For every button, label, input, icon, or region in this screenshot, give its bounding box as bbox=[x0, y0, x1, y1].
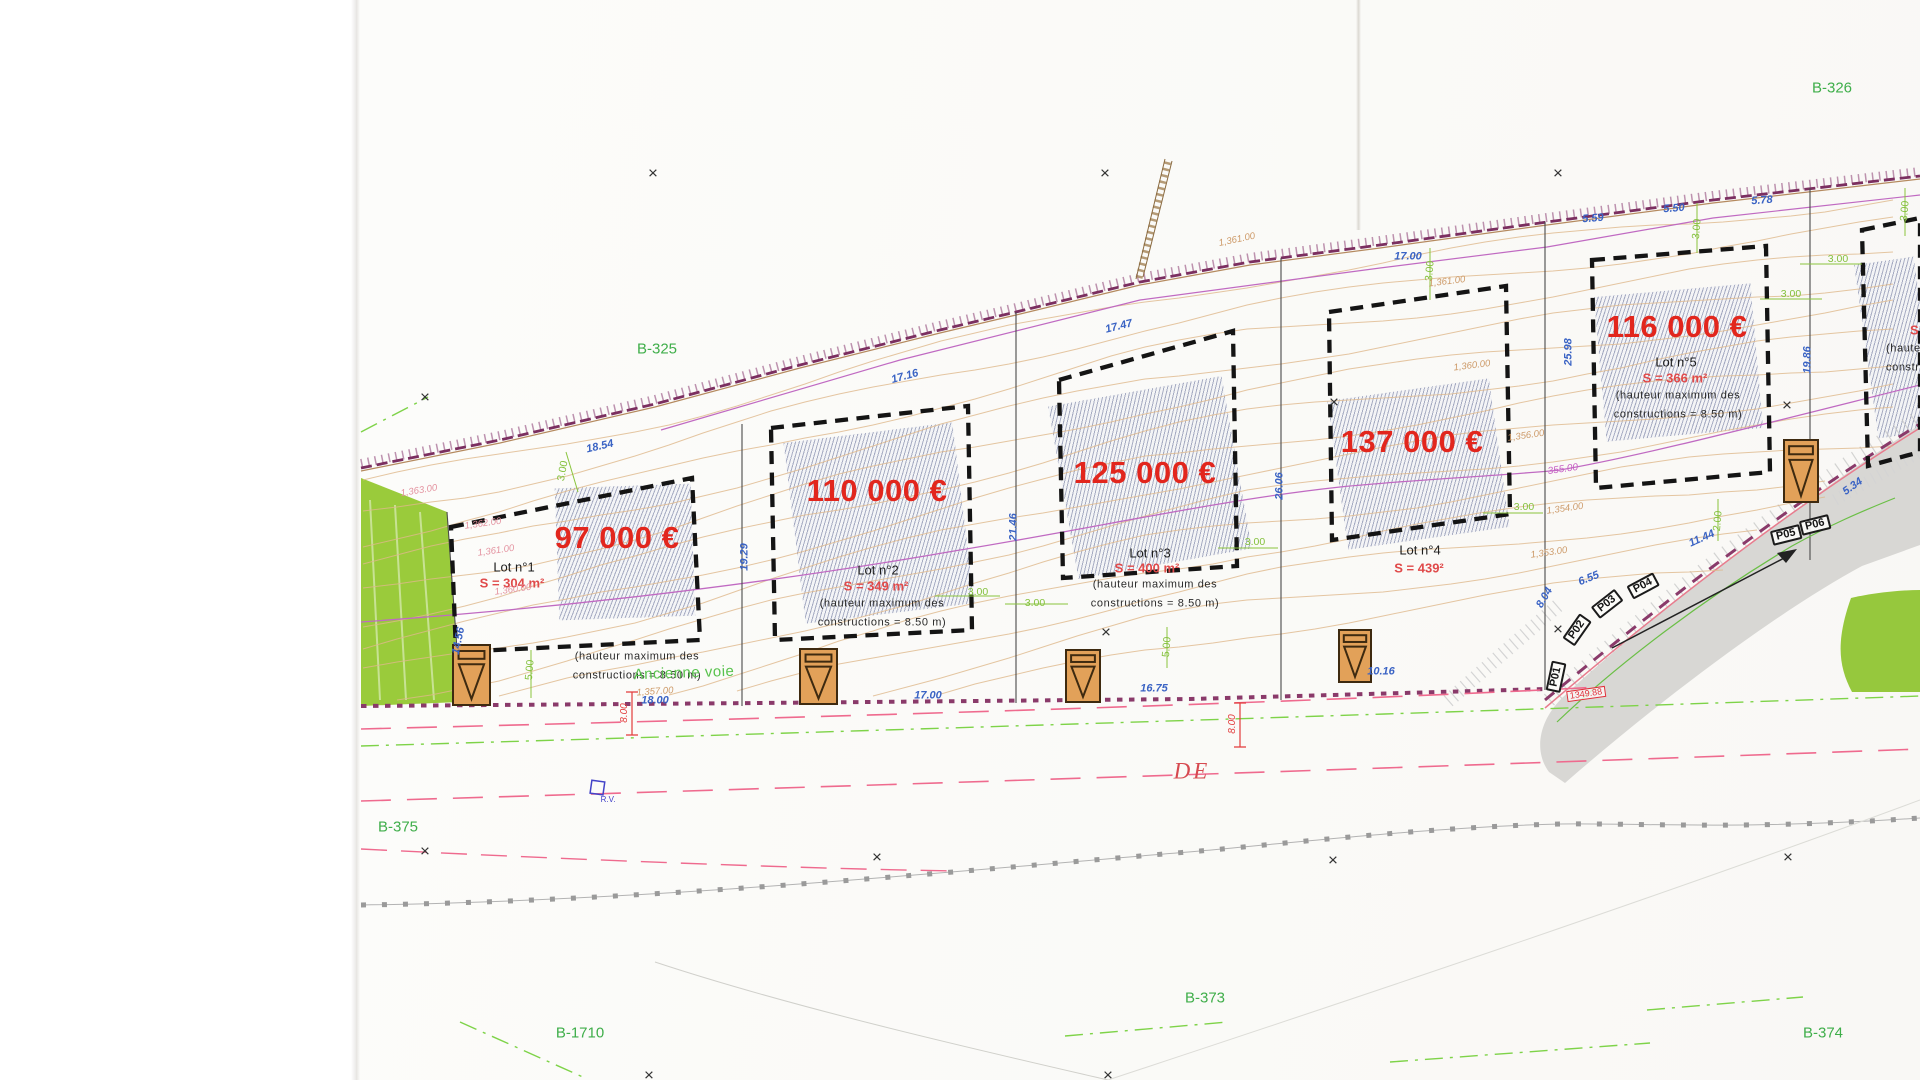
green-limit-lines bbox=[361, 397, 1920, 1078]
site-plan-drawing bbox=[0, 0, 1920, 1080]
lot-3-price: 125 000 € bbox=[1074, 455, 1216, 491]
south-boundary bbox=[361, 689, 1545, 706]
survey-cross-icon: × bbox=[1783, 849, 1793, 866]
cadastral-site-plan: 97 000 € 110 000 € 125 000 € 137 000 € 1… bbox=[0, 0, 1920, 1080]
scan-crease bbox=[1356, 0, 1361, 230]
dimension-label: 26.06 bbox=[1275, 472, 1286, 500]
dimension-label: 5.00 bbox=[524, 659, 536, 680]
survey-cross-icon: × bbox=[1103, 1067, 1113, 1080]
lot-3-area: S = 400 m² bbox=[1115, 561, 1180, 576]
lot-3-name: Lot n°3 bbox=[1129, 546, 1170, 561]
dimension-label: 17.00 bbox=[914, 691, 942, 702]
dimension-label: 3.00 bbox=[1828, 254, 1848, 265]
dimension-label: 8.00 bbox=[620, 703, 630, 722]
lot-5-height-note: (hauteur maximum des constructions = 8.5… bbox=[1614, 386, 1742, 423]
lot-1-price: 97 000 € bbox=[555, 520, 680, 556]
lot-5-name: Lot n°5 bbox=[1655, 355, 1696, 370]
lot-2-height-note: (hauteur maximum des constructions = 8.5… bbox=[818, 594, 946, 631]
dimension-label: 5.59 bbox=[1582, 213, 1604, 225]
utility-access-symbol bbox=[1066, 650, 1100, 702]
lot-2-area: S = 349 m² bbox=[844, 579, 909, 594]
lot-5-area: S = 366 m² bbox=[1643, 371, 1708, 386]
lot-4-area: S = 439² bbox=[1394, 561, 1444, 576]
lot-6-height-note-clipped: (hauteur maximum des constructions = 8.5… bbox=[1886, 339, 1920, 376]
survey-cross-icon: × bbox=[1553, 165, 1563, 182]
survey-cross-icon: × bbox=[872, 849, 882, 866]
rv-marker-label: R.V. bbox=[601, 796, 616, 804]
dimension-label: 3.00 bbox=[1514, 502, 1534, 513]
parcel-id-label: B-325 bbox=[637, 342, 677, 357]
survey-cross-icon: × bbox=[1328, 852, 1338, 869]
dimension-label: 8.00 bbox=[1228, 714, 1238, 733]
dimension-label: 17.00 bbox=[1394, 252, 1422, 263]
contour-elevation-label: 1,357.00 bbox=[636, 686, 674, 698]
parcel-id-label: B-1710 bbox=[556, 1026, 604, 1041]
dimension-label: 2.00 bbox=[1712, 510, 1724, 531]
dimension-label: 5.78 bbox=[1751, 195, 1773, 207]
road-name-fragment: DE bbox=[1174, 760, 1211, 783]
survey-cross-icon: × bbox=[644, 1067, 654, 1080]
parcel-id-label: B-375 bbox=[378, 820, 418, 835]
grass-strip bbox=[361, 478, 460, 706]
survey-cross-icon: × bbox=[1553, 621, 1563, 638]
dimension-label: 3.00 bbox=[1245, 537, 1265, 548]
lot-1-name: Lot n°1 bbox=[493, 560, 534, 575]
dimension-label: 3.00 bbox=[1781, 289, 1801, 300]
survey-cross-icon: × bbox=[420, 389, 430, 406]
utility-access-symbol bbox=[800, 649, 837, 704]
stone-wall-line bbox=[361, 818, 1920, 905]
dimension-label: 25.98 bbox=[1564, 338, 1575, 366]
dimension-label: 3.00 bbox=[1025, 598, 1045, 609]
ancienne-voie-label: Ancienne voie bbox=[633, 664, 734, 683]
survey-cross-icon: × bbox=[1101, 624, 1111, 641]
lot-2-price: 110 000 € bbox=[807, 473, 948, 509]
dirt-track bbox=[1139, 160, 1168, 278]
survey-cross-icon: × bbox=[1329, 394, 1339, 411]
rv-marker-icon bbox=[590, 780, 605, 795]
survey-cross-icon: × bbox=[420, 843, 430, 860]
lot-3-height-note: (hauteur maximum des constructions = 8.5… bbox=[1091, 575, 1219, 612]
lot-4-name: Lot n°4 bbox=[1399, 543, 1440, 558]
survey-cross-icon: × bbox=[1100, 165, 1110, 182]
lot-4-price: 137 000 € bbox=[1341, 424, 1483, 460]
dimension-label: 19.86 bbox=[1803, 346, 1814, 374]
dimension-label: 16.75 bbox=[1140, 684, 1168, 695]
parcel-id-label: B-326 bbox=[1812, 81, 1852, 96]
dimension-label: 5.00 bbox=[1161, 636, 1173, 657]
parcel-id-label: B-373 bbox=[1185, 991, 1225, 1006]
lot-6-area-clipped: S = bbox=[1910, 323, 1920, 338]
dimension-label: 3.00 bbox=[1899, 200, 1911, 221]
dimension-label: 3.00 bbox=[1691, 218, 1703, 239]
dimension-label: 21.46 bbox=[1009, 513, 1020, 541]
dimension-label: 5.50 bbox=[1663, 203, 1685, 215]
utility-access-symbol bbox=[1339, 630, 1371, 682]
survey-cross-icon: × bbox=[1782, 397, 1792, 414]
utility-access-symbol bbox=[1784, 440, 1818, 502]
survey-cross-icon: × bbox=[648, 165, 658, 182]
lot-5-price: 116 000 € bbox=[1607, 309, 1748, 345]
dimension-label: 10.16 bbox=[1367, 667, 1395, 678]
grass-patch-road bbox=[1841, 590, 1920, 692]
parcel-id-label: B-374 bbox=[1803, 1026, 1843, 1041]
dimension-label: 3.00 bbox=[968, 587, 988, 598]
dimension-label: 19.29 bbox=[740, 543, 751, 571]
lot-2-name: Lot n°2 bbox=[857, 563, 898, 578]
